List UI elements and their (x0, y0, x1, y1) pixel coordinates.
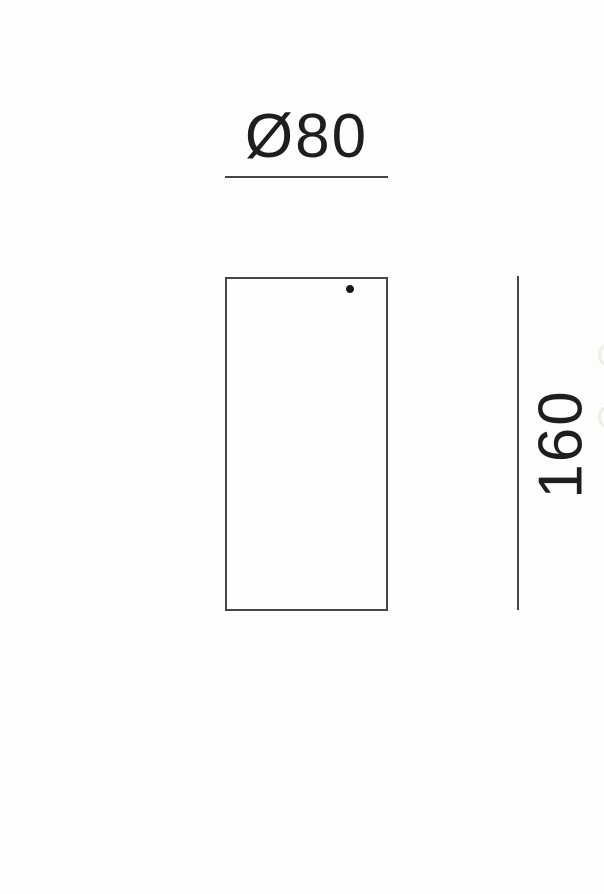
product-body-outline (225, 277, 388, 611)
clipped-glyph-fragment (598, 406, 604, 428)
indicator-dot (346, 285, 354, 293)
dimension-drawing: Ø80 160 (0, 0, 604, 894)
height-dimension-line (517, 276, 519, 610)
diameter-label: Ø80 (225, 104, 388, 170)
diameter-dimension-line (225, 176, 388, 178)
clipped-glyph-fragment (598, 344, 604, 366)
height-label: 160 (526, 389, 597, 498)
